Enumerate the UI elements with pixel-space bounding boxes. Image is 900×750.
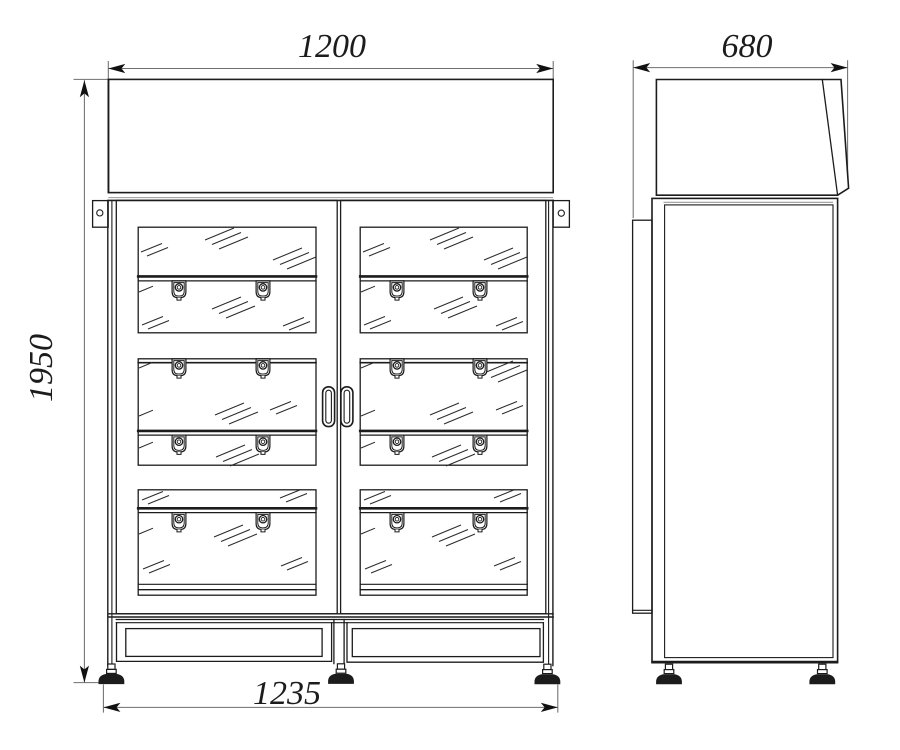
dimension-front-width-label: 1200 — [298, 28, 366, 65]
leveling-foot — [99, 664, 124, 684]
door-latch — [390, 513, 404, 532]
door-latch — [473, 435, 487, 454]
door-handle-right — [341, 387, 353, 427]
door-latch — [473, 281, 487, 300]
base-panel-left — [117, 623, 332, 662]
door-latch — [172, 359, 186, 378]
door-latch — [172, 435, 186, 454]
leveling-foot — [329, 664, 354, 684]
glass-panel — [138, 359, 316, 465]
door-latch — [390, 359, 404, 378]
bracket-hole-icon — [558, 210, 564, 216]
front-view: 1200 1950 1235 — [23, 28, 569, 713]
leveling-foot — [657, 664, 682, 684]
bottom-rails — [108, 614, 553, 623]
side-view: 680 — [633, 28, 849, 684]
leveling-foot — [810, 664, 835, 684]
door-left — [116, 200, 337, 613]
dimension-side-depth-label: 680 — [722, 28, 773, 65]
glass-panel — [360, 490, 527, 595]
door-latch — [172, 281, 186, 300]
leveling-foot — [535, 664, 560, 684]
door-latch — [256, 435, 270, 454]
mounting-bracket-left — [93, 201, 109, 228]
door-latch — [172, 513, 186, 532]
glass-panel — [360, 359, 527, 465]
door-right — [341, 200, 546, 613]
door-latch — [256, 281, 270, 300]
base-center-post — [334, 620, 344, 664]
cabinet-side-body — [652, 198, 838, 662]
door-latch — [256, 513, 270, 532]
door-latch — [390, 435, 404, 454]
drawing-canvas: 1200 1950 1235 — [0, 0, 900, 750]
dimension-front-height: 1950 — [23, 79, 110, 682]
dimension-front-height-label: 1950 — [23, 334, 60, 402]
door-latch — [473, 359, 487, 378]
sign-box-side — [656, 80, 848, 196]
door-edge-strip — [633, 220, 652, 613]
sign-box — [108, 79, 553, 192]
door-handle-left — [323, 387, 335, 427]
dimension-base-width-label: 1235 — [253, 675, 321, 712]
base-panel-right — [347, 623, 543, 663]
door-latch — [390, 281, 404, 300]
mounting-bracket-right — [553, 201, 569, 228]
glass-panel — [138, 227, 316, 333]
door-latch — [473, 513, 487, 532]
door-latch — [256, 359, 270, 378]
cabinet-technical-drawing: 1200 1950 1235 — [0, 0, 900, 750]
glass-panel — [360, 227, 527, 333]
glass-panel — [138, 490, 316, 595]
dimension-front-width: 1200 — [108, 28, 553, 79]
bracket-hole-icon — [97, 210, 103, 216]
